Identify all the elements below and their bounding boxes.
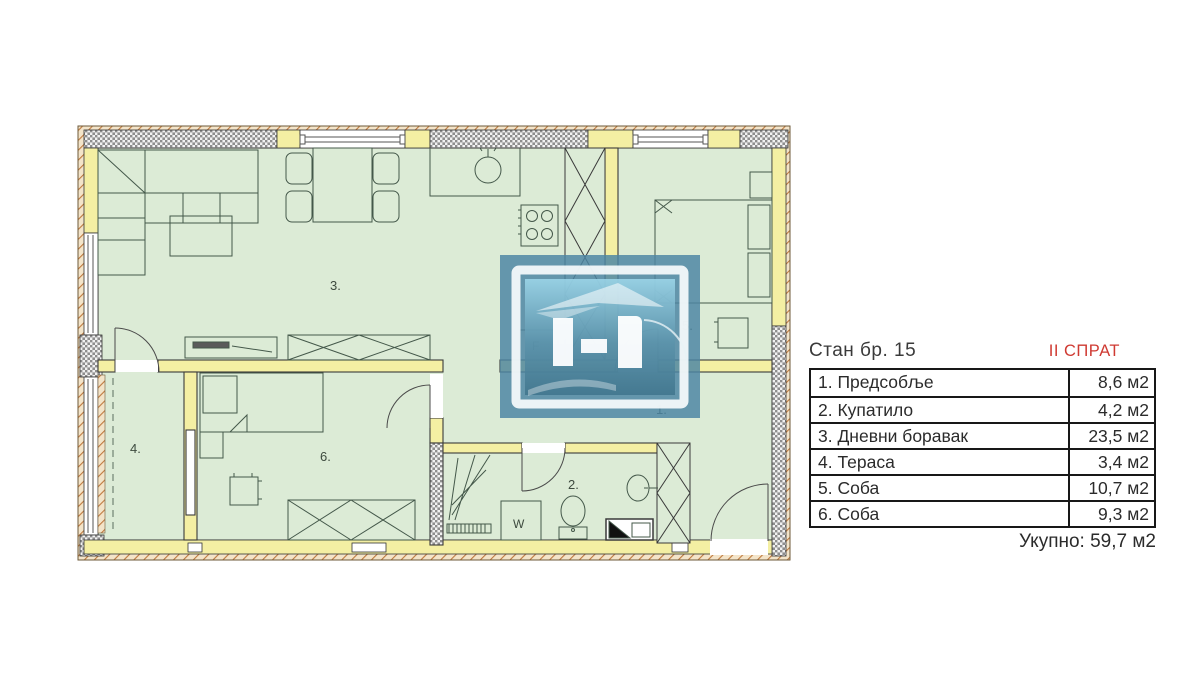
room-area-table: 1. Предсобље 8,6 м2 2. Купатило 4,2 м2 3… xyxy=(809,368,1156,528)
label-bedroom6: 6. xyxy=(320,449,331,464)
watermark-logo xyxy=(500,255,700,418)
floorplan-svg: 3. 5. 4. 6. 2. 1. F W xyxy=(0,0,1200,675)
room-area: 10,7 м2 xyxy=(1068,476,1154,500)
label-living-room: 3. xyxy=(330,278,341,293)
label-bathroom: 2. xyxy=(568,477,579,492)
room-area: 8,6 м2 xyxy=(1068,370,1154,396)
total-area: Укупно: 59,7 м2 xyxy=(809,531,1156,553)
bathroom-vanity xyxy=(606,519,653,540)
table-row: 5. Соба 10,7 м2 xyxy=(811,474,1154,500)
room-area: 9,3 м2 xyxy=(1068,502,1154,526)
room-area: 23,5 м2 xyxy=(1068,424,1154,448)
room-name: 3. Дневни боравак xyxy=(811,424,1068,448)
table-row: 4. Тераса 3,4 м2 xyxy=(811,448,1154,474)
shaft-bathroom xyxy=(657,443,690,543)
table-row: 3. Дневни боравак 23,5 м2 xyxy=(811,422,1154,448)
room-name: 4. Тераса xyxy=(811,450,1068,474)
floor-label: II СПРАТ xyxy=(1049,342,1156,361)
floorplan-page: 3. 5. 4. 6. 2. 1. F W xyxy=(0,0,1200,675)
table-row: 6. Соба 9,3 м2 xyxy=(811,500,1154,526)
label-washer: W xyxy=(513,517,525,531)
apartment-title: Стан бр. 15 xyxy=(809,340,916,362)
room-area: 4,2 м2 xyxy=(1068,398,1154,422)
table-row: 2. Купатило 4,2 м2 xyxy=(811,396,1154,422)
room-name: 2. Купатило xyxy=(811,398,1068,422)
room-name: 6. Соба xyxy=(811,502,1068,526)
panel-header: Стан бр. 15 II СПРАТ xyxy=(809,340,1156,366)
label-terrace: 4. xyxy=(130,441,141,456)
apartment-info-panel: Стан бр. 15 II СПРАТ 1. Предсобље 8,6 м2… xyxy=(809,340,1156,553)
table-row: 1. Предсобље 8,6 м2 xyxy=(811,370,1154,396)
room-name: 5. Соба xyxy=(811,476,1068,500)
room-area: 3,4 м2 xyxy=(1068,450,1154,474)
room-name: 1. Предсобље xyxy=(811,370,1068,396)
floorplan-drawing: 3. 5. 4. 6. 2. 1. F W xyxy=(0,0,1200,675)
